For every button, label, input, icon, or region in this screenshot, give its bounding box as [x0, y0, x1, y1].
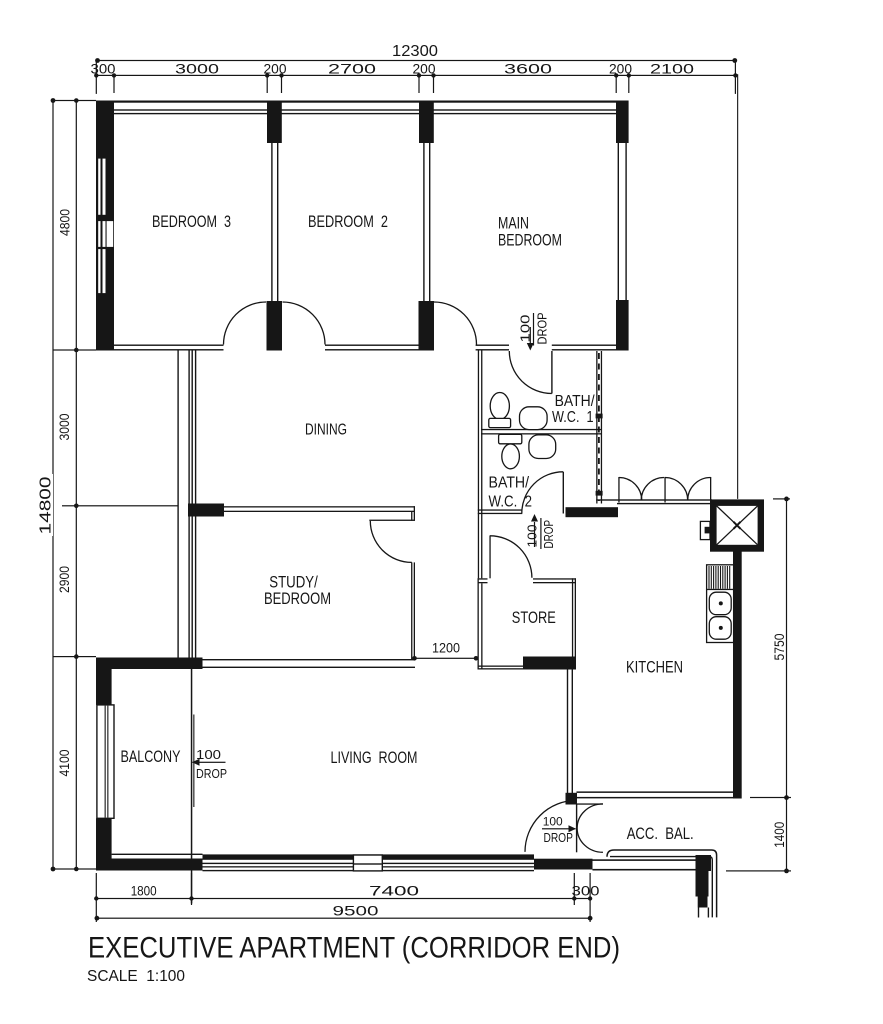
svg-text:200: 200 [609, 60, 632, 76]
svg-text:DROP: DROP [541, 520, 556, 549]
svg-text:12300: 12300 [392, 43, 438, 60]
svg-text:300: 300 [572, 883, 600, 899]
svg-text:KITCHEN: KITCHEN [626, 657, 683, 676]
svg-text:DINING: DINING [305, 422, 347, 439]
svg-text:W.C. 2: W.C. 2 [489, 493, 533, 510]
svg-text:BATH/: BATH/ [555, 393, 596, 410]
svg-text:4100: 4100 [56, 749, 72, 776]
svg-text:100: 100 [525, 525, 540, 548]
svg-text:SCALE 1:100: SCALE 1:100 [87, 968, 185, 985]
svg-text:ACC. BAL.: ACC. BAL. [627, 824, 694, 843]
svg-text:3000: 3000 [56, 413, 72, 440]
svg-text:2900: 2900 [56, 566, 72, 593]
svg-text:14800: 14800 [38, 476, 55, 535]
svg-text:2700: 2700 [328, 60, 376, 76]
svg-text:9500: 9500 [333, 903, 379, 919]
svg-text:200: 200 [264, 60, 287, 76]
svg-text:3600: 3600 [504, 60, 552, 76]
svg-text:100: 100 [543, 814, 563, 828]
svg-text:STORE: STORE [512, 608, 556, 627]
svg-text:7400: 7400 [369, 883, 419, 899]
svg-text:1200: 1200 [432, 640, 460, 656]
svg-text:100: 100 [196, 747, 221, 762]
svg-text:1400: 1400 [771, 822, 787, 848]
svg-text:BATH/: BATH/ [489, 474, 530, 491]
svg-text:3000: 3000 [175, 60, 219, 76]
svg-text:BEDROOM 2: BEDROOM 2 [308, 212, 388, 231]
svg-text:BEDROOM: BEDROOM [498, 231, 562, 250]
svg-text:W.C. 1: W.C. 1 [552, 409, 594, 426]
svg-text:BALCONY: BALCONY [121, 747, 181, 766]
svg-text:4800: 4800 [57, 209, 73, 236]
svg-text:2100: 2100 [650, 60, 694, 76]
svg-text:LIVING ROOM: LIVING ROOM [331, 748, 418, 767]
svg-text:DROP: DROP [196, 766, 227, 781]
svg-text:EXECUTIVE APARTMENT (CORRIDOR: EXECUTIVE APARTMENT (CORRIDOR END) [88, 932, 620, 965]
svg-text:200: 200 [413, 60, 436, 76]
svg-text:BEDROOM: BEDROOM [264, 589, 331, 608]
svg-text:5750: 5750 [771, 633, 787, 660]
svg-text:DROP: DROP [535, 313, 550, 345]
svg-text:1800: 1800 [131, 883, 157, 899]
svg-text:300: 300 [91, 60, 116, 76]
svg-text:BEDROOM 3: BEDROOM 3 [152, 212, 231, 231]
